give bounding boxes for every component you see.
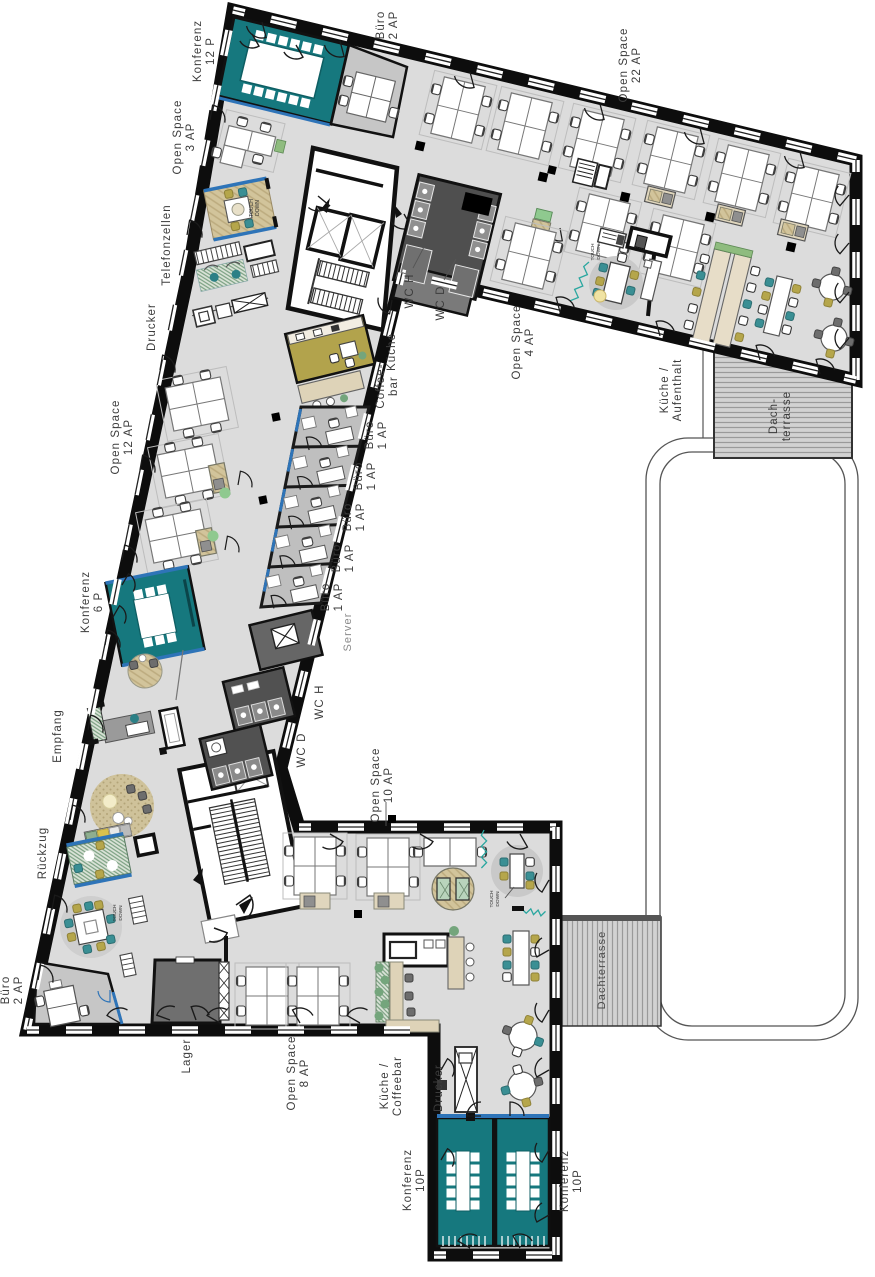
svg-text:Dach-: Dach- bbox=[768, 398, 780, 434]
svg-text:Open Space: Open Space bbox=[286, 1036, 298, 1111]
svg-text:bar: bar bbox=[388, 376, 400, 396]
svg-text:4 AP: 4 AP bbox=[524, 328, 536, 357]
svg-text:Coffeebar: Coffeebar bbox=[392, 1056, 404, 1116]
svg-text:Drucker: Drucker bbox=[433, 1064, 445, 1112]
svg-text:Büro: Büro bbox=[331, 544, 343, 573]
svg-text:Küche: Küche bbox=[386, 333, 398, 371]
svg-text:Empfang: Empfang bbox=[52, 709, 64, 763]
svg-text:Telefonzellen: Telefonzellen bbox=[161, 204, 173, 285]
svg-text:1 AP: 1 AP bbox=[366, 462, 378, 491]
svg-text:1 AP: 1 AP bbox=[333, 583, 345, 612]
svg-text:Open Space: Open Space bbox=[172, 100, 184, 175]
svg-text:Dachterrasse: Dachterrasse bbox=[596, 931, 608, 1010]
svg-text:TOUCH: TOUCH bbox=[590, 243, 596, 261]
svg-text:WC D: WC D bbox=[296, 732, 308, 767]
svg-text:DOWN: DOWN bbox=[596, 244, 602, 260]
svg-text:WC D: WC D bbox=[435, 285, 447, 320]
svg-text:Drucker: Drucker bbox=[146, 303, 158, 351]
svg-text:1 AP: 1 AP bbox=[377, 421, 389, 450]
svg-text:TOUCH: TOUCH bbox=[489, 890, 495, 908]
svg-text:Büro: Büro bbox=[364, 421, 376, 450]
svg-text:Lager: Lager bbox=[181, 1039, 193, 1074]
svg-text:2 AP: 2 AP bbox=[388, 11, 400, 40]
svg-text:Konferenz: Konferenz bbox=[402, 1149, 414, 1211]
svg-text:TOUCH: TOUCH bbox=[112, 904, 118, 922]
svg-text:DOWN: DOWN bbox=[118, 905, 124, 921]
svg-text:Büro: Büro bbox=[0, 976, 12, 1005]
svg-text:Büro: Büro bbox=[342, 503, 354, 532]
svg-text:Konferenz: Konferenz bbox=[559, 1150, 571, 1212]
svg-text:Büro: Büro bbox=[320, 583, 332, 612]
svg-text:DOWN: DOWN bbox=[255, 200, 261, 216]
svg-text:12 P: 12 P bbox=[205, 37, 217, 65]
svg-text:Konferenz: Konferenz bbox=[80, 571, 92, 633]
svg-text:WC H: WC H bbox=[314, 684, 326, 719]
svg-text:Büro: Büro bbox=[375, 11, 387, 40]
svg-text:Open Space: Open Space bbox=[370, 748, 382, 823]
svg-text:12 AP: 12 AP bbox=[123, 419, 135, 455]
svg-text:DOWN: DOWN bbox=[495, 891, 501, 907]
svg-text:10P: 10P bbox=[572, 1169, 584, 1193]
svg-text:10 AP: 10 AP bbox=[383, 767, 395, 803]
svg-text:Konferenz: Konferenz bbox=[192, 20, 204, 82]
svg-text:10P: 10P bbox=[415, 1168, 427, 1192]
svg-text:1 AP: 1 AP bbox=[344, 544, 356, 573]
svg-text:Open Space: Open Space bbox=[618, 28, 630, 103]
svg-text:22 AP: 22 AP bbox=[631, 47, 643, 83]
svg-text:8 AP: 8 AP bbox=[299, 1059, 311, 1088]
svg-text:1 AP: 1 AP bbox=[355, 503, 367, 532]
svg-text:2 AP: 2 AP bbox=[13, 976, 25, 1005]
svg-text:Küche /: Küche / bbox=[659, 367, 671, 414]
svg-text:Büro: Büro bbox=[353, 462, 365, 491]
svg-text:6 P: 6 P bbox=[93, 592, 105, 613]
svg-text:Rückzug: Rückzug bbox=[37, 827, 49, 879]
svg-text:Open Space: Open Space bbox=[511, 305, 523, 380]
svg-text:WC H: WC H bbox=[404, 273, 416, 308]
svg-text:Aufenthalt: Aufenthalt bbox=[672, 359, 684, 422]
svg-text:Server: Server bbox=[342, 613, 354, 652]
svg-text:Open Space: Open Space bbox=[110, 400, 122, 475]
svg-text:Küche /: Küche / bbox=[379, 1063, 391, 1110]
svg-text:3 AP: 3 AP bbox=[185, 123, 197, 152]
svg-text:terrasse: terrasse bbox=[781, 391, 793, 441]
